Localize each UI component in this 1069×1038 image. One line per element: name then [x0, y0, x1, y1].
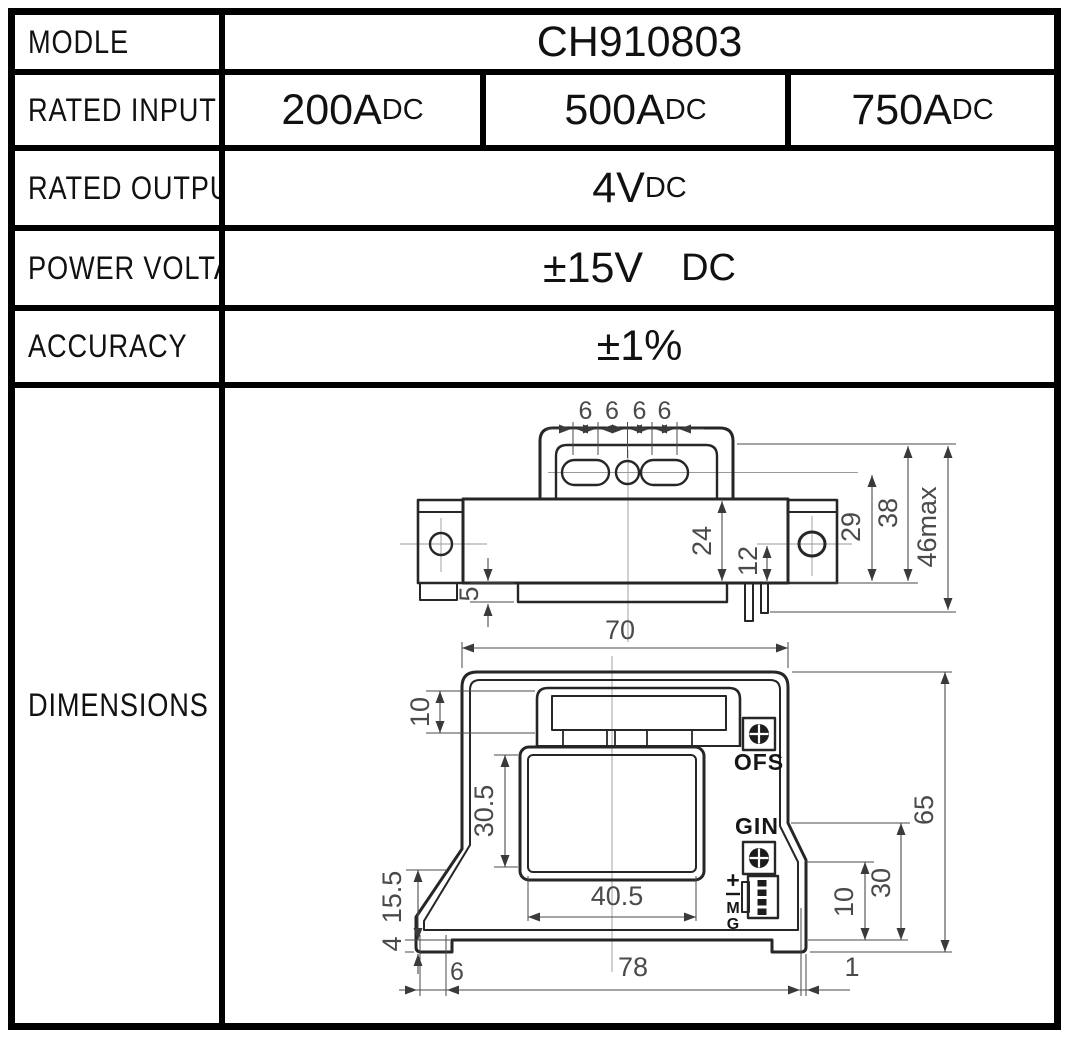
dim-plate-thickness: 5	[454, 586, 484, 601]
dim-bracket-height: 38	[873, 498, 903, 528]
dim-window-height: 30.5	[469, 785, 499, 838]
pin-m-label: M	[726, 900, 739, 917]
pin-g-label: G	[727, 916, 739, 933]
power-voltage-cell: ±15VDC	[225, 231, 1054, 305]
power-voltage-value: ±15V	[543, 244, 643, 293]
dim-pitch-3: 6	[633, 397, 647, 425]
rated-input-2-value: 500A	[564, 86, 664, 135]
rated-input-1-unit: DC	[382, 94, 424, 127]
rated-output-cell: 4VDC	[225, 151, 1054, 225]
rated-output-value: 4V	[592, 164, 645, 213]
front-view: OFS GIN +	[377, 615, 952, 996]
accuracy-label-cell: ACCURACY	[15, 311, 219, 382]
gin-label: GIN	[735, 813, 779, 839]
top-view: 6 6 6 6 24 12 29 38 46max	[400, 397, 956, 642]
rated-input-3: 750ADC	[791, 75, 1054, 145]
dimensions-drawing-cell: 6 6 6 6 24 12 29 38 46max	[225, 388, 1054, 1023]
dim-edge-gap: 1	[844, 952, 859, 982]
rated-input-1-value: 200A	[281, 86, 381, 135]
accuracy-cell: ±1%	[225, 311, 1054, 382]
model-value-cell: CH910803	[225, 15, 1054, 69]
bracket-inner-outline	[556, 445, 717, 499]
power-voltage-label: POWER VOLTAGE	[28, 250, 219, 287]
rated-input-label-cell: RATED INPUT	[15, 75, 219, 145]
spec-table: MODLE CH910803 RATED INPUT 200ADC 500ADC…	[8, 8, 1061, 1030]
pin-plus-label: +	[726, 867, 739, 893]
dim-total-height: 65	[909, 795, 939, 825]
dim-busbar-height: 10	[405, 697, 435, 727]
dim-max-height: 46max	[912, 486, 942, 568]
rated-input-3-unit: DC	[952, 94, 994, 127]
busbar-segment-lines	[563, 730, 692, 746]
dim-foot-width: 6	[450, 958, 464, 986]
rated-input-2-unit: DC	[665, 94, 707, 127]
power-voltage-label-cell: POWER VOLTAGE	[15, 231, 219, 305]
accuracy-label: ACCURACY	[28, 328, 187, 365]
rated-output-unit: DC	[645, 172, 687, 205]
connector-pins	[758, 880, 767, 915]
dim-window-width: 40.5	[591, 881, 644, 911]
power-voltage-unit: DC	[681, 247, 736, 290]
rated-input-label: RATED INPUT	[28, 92, 217, 129]
dimensions-label-cell: DIMENSIONS	[15, 388, 219, 1023]
dim-left-step-height: 15.5	[377, 871, 407, 924]
dim-hole-height: 29	[836, 512, 866, 542]
rated-output-label: RATED OUTPUT	[28, 170, 219, 207]
dim-right-foot-height: 10	[829, 887, 859, 917]
dim-pitch-2: 6	[605, 397, 619, 425]
dim-right-step-height: 30	[866, 868, 896, 898]
rated-input-values: 200ADC 500ADC 750ADC	[225, 75, 1054, 145]
ofs-label: OFS	[734, 749, 784, 775]
dimensions-label: DIMENSIONS	[28, 687, 209, 724]
rated-input-1: 200ADC	[225, 75, 480, 145]
busbar-inner	[552, 696, 726, 730]
dim-body-width: 70	[605, 615, 635, 645]
rated-input-3-value: 750A	[851, 86, 951, 135]
dimensions-drawing: 6 6 6 6 24 12 29 38 46max	[225, 388, 1054, 1023]
dim-base-width: 78	[618, 952, 648, 982]
rated-output-label-cell: RATED OUTPUT	[15, 151, 219, 225]
model-label-cell: MODLE	[15, 15, 219, 69]
dim-foot-height: 4	[377, 936, 407, 951]
dim-pin-offset: 12	[733, 546, 763, 576]
left-tab-foot	[420, 583, 457, 600]
terminal-pin-2	[761, 583, 768, 613]
rated-input-2: 500ADC	[486, 75, 785, 145]
terminal-pin-1	[745, 583, 753, 621]
dim-body-height: 24	[687, 526, 717, 556]
dim-pitch-1: 6	[579, 397, 593, 425]
bottom-plate	[518, 583, 727, 602]
dim-pitch-4: 6	[658, 397, 672, 425]
model-value: CH910803	[537, 18, 743, 67]
model-label: MODLE	[28, 24, 129, 61]
pitch-dimension: 6 6 6 6	[546, 397, 704, 429]
bracket-outline	[540, 428, 733, 499]
spec-sheet: MODLE CH910803 RATED INPUT 200ADC 500ADC…	[0, 0, 1069, 1038]
accuracy-value: ±1%	[597, 322, 683, 371]
